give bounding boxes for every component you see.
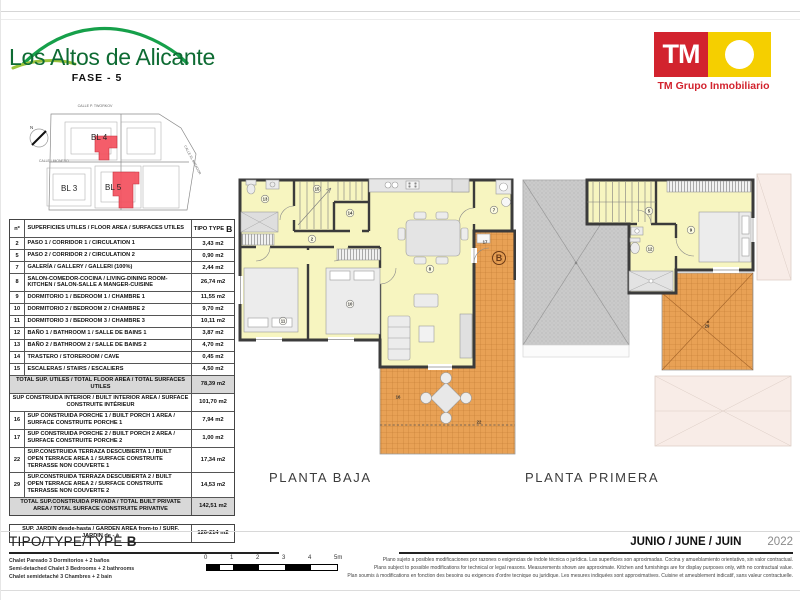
- date-year: 2022: [767, 536, 793, 548]
- table-row: 12BAÑO 1 / BATHROOM 1 / SALLE DE BAINS 1…: [10, 328, 234, 340]
- type-description: Chalet Pareado 3 Dormitorios + 2 baños S…: [9, 558, 134, 582]
- project-title: Los Altos de Alicante: [9, 44, 215, 71]
- garden-area-value: 126-214 m2: [191, 525, 234, 542]
- room-label: 16: [396, 395, 401, 400]
- phase-label: FASE - 5: [57, 72, 137, 84]
- footer-rule-bottom: [1, 590, 800, 591]
- room-label: 17: [483, 240, 488, 245]
- disclaimer-en: Plans subject to possible modifications …: [141, 565, 793, 573]
- caption-planta-primera: PLANTA PRIMERA: [525, 470, 659, 485]
- svg-text:N: N: [30, 125, 33, 130]
- surfaces-table-main: nº SUPERFICIES UTILES / FLOOR AREA / SUR…: [9, 219, 235, 516]
- col-desc-header: SUPERFICIES UTILES / FLOOR AREA / SURFAC…: [25, 220, 191, 237]
- table-row: 5PASO 2 / CORRIDOR 2 / CIRCULATION 20,90…: [10, 250, 234, 262]
- table-row: 17SUP CONSTRUIDA PORCHE 2 / BUILT PORCH …: [10, 430, 234, 448]
- disclaimer-es: Plano sujeto a posibles modificaciones p…: [141, 557, 793, 565]
- table-row: 16SUP CONSTRUIDA PORCHE 1 / BUILT PORCH …: [10, 412, 234, 430]
- table-row: 29SUP.CONSTRUIDA TERRAZA DESCUBIERTA 2 /…: [10, 473, 234, 498]
- type-desc-fr: Chalet semidetaché 3 Chambres + 2 bain: [9, 574, 134, 582]
- block-label: BL 3: [61, 184, 78, 193]
- col-type-header: TIPO TYPEB: [191, 220, 234, 237]
- date-label: JUNIO / JUNE / JUIN 2022: [630, 536, 793, 548]
- type-desc-en: Semi-detached Chalet 3 Bedrooms + 2 bath…: [9, 566, 134, 574]
- type-title: TIPO/TYPE/TYPE B: [9, 534, 137, 549]
- site-plan: CALLE P. TWORKOV CALLE LIMONERO CALLE EL…: [21, 98, 201, 218]
- room-label: 12: [648, 247, 653, 252]
- col-number-header: nº: [10, 220, 25, 237]
- room-label: 22: [477, 420, 482, 425]
- room-label: 10: [348, 302, 353, 307]
- table-row: SUP CONSTRUIDA INTERIOR / BUILT INTERIOR…: [10, 394, 234, 412]
- brochure-page: Los Altos de Alicante FASE - 5 TM TM Gru…: [0, 0, 800, 600]
- tm-logo-yellow-square: [708, 32, 771, 77]
- street-label-left: CALLE LIMONERO: [39, 159, 69, 163]
- table-row: 11DORMITORIO 3 / BEDROOM 3 / CHAMBRE 310…: [10, 316, 234, 328]
- table-row: 22SUP.CONSTRUIDA TERRAZA DESCUBIERTA 1 /…: [10, 448, 234, 473]
- disclaimer-fr: Plan soumis à modifications en fonction …: [141, 573, 793, 581]
- caption-planta-baja: PLANTA BAJA: [269, 470, 372, 485]
- date-months: JUNIO / JUNE / JUIN: [630, 536, 741, 548]
- room-label: 15: [315, 187, 320, 192]
- footer-rule-top: [1, 531, 800, 532]
- tm-logo-circle: [725, 40, 754, 69]
- block-label: BL 4: [91, 133, 108, 142]
- room-label: 11: [281, 319, 286, 324]
- street-label-top: CALLE P. TWORKOV: [78, 104, 113, 108]
- room-label: 14: [348, 211, 353, 216]
- tm-brand-name: TM Grupo Inmobiliario: [646, 80, 781, 92]
- table-row: 2PASO 1 / CORRIDOR 1 / CIRCULATION 13,43…: [10, 238, 234, 250]
- legal-disclaimer: Plano sujeto a posibles modificaciones p…: [141, 557, 793, 580]
- date-underline: [399, 552, 793, 554]
- table-row: 13BAÑO 2 / BATHROOM 2 / SALLE DE BAINS 2…: [10, 340, 234, 352]
- table-row: 8SALON-COMEDOR-COCINA / LIVING-DINING RO…: [10, 274, 234, 292]
- room-label: 29: [705, 324, 710, 329]
- table-row: 14TRASTERO / STOREROOM / CAVE0,45 m2: [10, 352, 234, 364]
- table-row: 9DORMITORIO 1 / BEDROOM 1 / CHAMBRE 111,…: [10, 292, 234, 304]
- type-letter-label: B: [496, 253, 503, 263]
- room-label: 13: [263, 197, 268, 202]
- floor-plan-ground: 1315142781011171622B: [238, 168, 516, 460]
- top-rule-1: [1, 11, 800, 12]
- type-title-underline: [9, 552, 279, 554]
- street-label-right: CALLE EL MIRADOR: [183, 145, 201, 176]
- tm-logo-red-square: TM: [654, 32, 708, 77]
- table-row: 15ESCALERAS / STAIRS / ESCALIERS4,50 m2: [10, 364, 234, 376]
- block-label: BL 5: [105, 183, 122, 192]
- compass-icon: N: [30, 125, 48, 147]
- table-header-row: nº SUPERFICIES UTILES / FLOOR AREA / SUR…: [10, 220, 234, 238]
- table-row: TOTAL SUP.CONSTRUIDA PRIVADA / TOTAL BUI…: [10, 498, 234, 515]
- tm-logo: TM: [654, 32, 771, 77]
- floor-plan-first: 591229: [521, 168, 793, 458]
- table-row: 10DORMITORIO 2 / BEDROOM 2 / CHAMBRE 29,…: [10, 304, 234, 316]
- table-row: TOTAL SUP. UTILES / TOTAL FLOOR AREA / T…: [10, 376, 234, 394]
- surfaces-table: nº SUPERFICIES UTILES / FLOOR AREA / SUR…: [9, 219, 235, 543]
- type-desc-es: Chalet Pareado 3 Dormitorios + 2 baños: [9, 558, 134, 566]
- table-row: 7GALERÍA / GALLERY / GALLERI (100%)2,44 …: [10, 262, 234, 274]
